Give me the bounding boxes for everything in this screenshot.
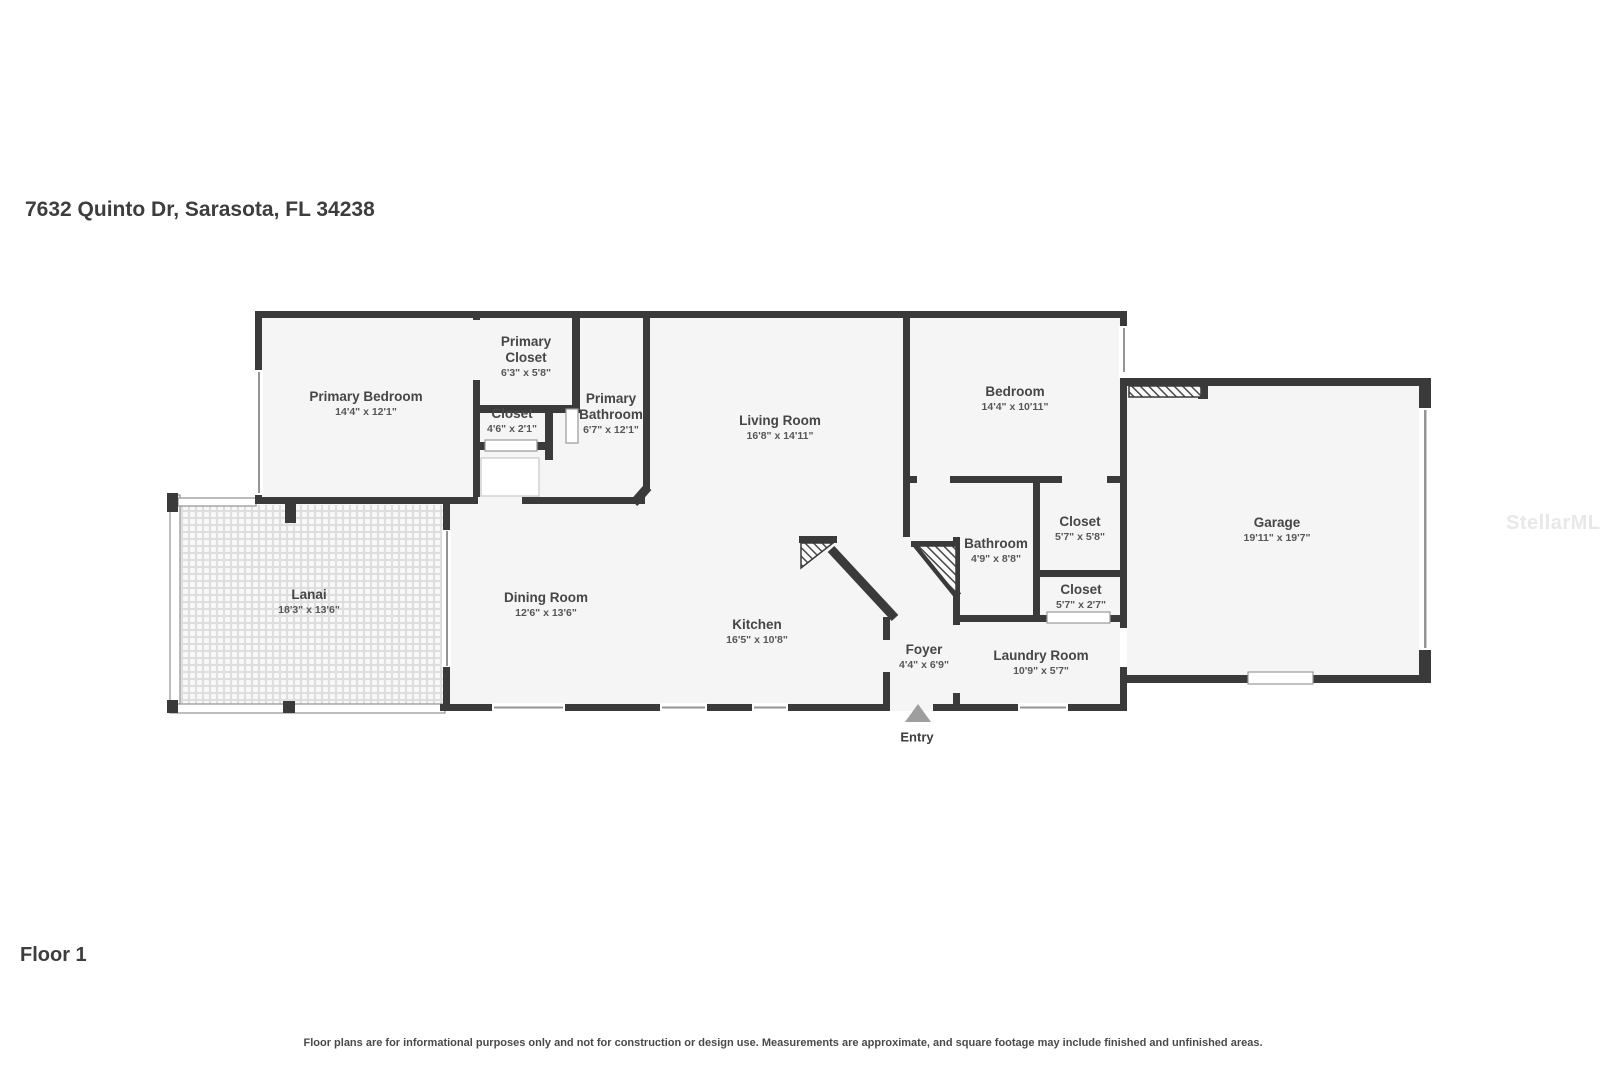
room-dims: 14'4" x 12'1" [266, 406, 466, 419]
room-dims: 16'5" x 10'8" [677, 634, 837, 647]
room-dims: 14'4" x 10'11" [935, 401, 1095, 414]
room-label-living-room: Living Room 16'8" x 14'11" [700, 413, 860, 443]
room-label-bedroom: Bedroom 14'4" x 10'11" [935, 384, 1095, 414]
room-dims: 18'3" x 13'6" [229, 604, 389, 617]
room-name: Primary Bedroom [266, 389, 466, 405]
floorplan-page: 7632 Quinto Dr, Sarasota, FL 34238 [0, 0, 1600, 1066]
room-label-closet-bedroom: Closet 5'7" x 5'8" [1035, 514, 1125, 544]
room-label-primary-bathroom: Primary Bathroom 6'7" x 12'1" [569, 391, 653, 437]
room-dims: 6'3" x 5'8" [489, 367, 563, 380]
room-name: Closet [467, 406, 557, 422]
room-name: Primary Closet [489, 334, 563, 366]
room-label-lanai: Lanai 18'3" x 13'6" [229, 587, 389, 617]
room-name: Primary Bathroom [569, 391, 653, 423]
room-label-kitchen: Kitchen 16'5" x 10'8" [677, 617, 837, 647]
room-name: Lanai [229, 587, 389, 603]
room-name: Kitchen [677, 617, 837, 633]
room-dims: 16'8" x 14'11" [700, 430, 860, 443]
entry-label: Entry [900, 730, 933, 745]
room-label-laundry-room: Laundry Room 10'9" x 5'7" [956, 648, 1126, 678]
room-name: Dining Room [466, 590, 626, 606]
room-name: Living Room [700, 413, 860, 429]
watermark: StellarMLS [1506, 512, 1600, 535]
room-name: Garage [1197, 515, 1357, 531]
room-name: Closet [1036, 582, 1126, 598]
room-label-garage: Garage 19'11" x 19'7" [1197, 515, 1357, 545]
room-dims: 5'7" x 5'8" [1035, 531, 1125, 544]
room-label-primary-bedroom: Primary Bedroom 14'4" x 12'1" [266, 389, 466, 419]
floorplan-drawing [0, 0, 1600, 1066]
room-label-dining-room: Dining Room 12'6" x 13'6" [466, 590, 626, 620]
room-dims: 19'11" x 19'7" [1197, 532, 1357, 545]
disclaimer-text: Floor plans are for informational purpos… [303, 1037, 1262, 1049]
room-name: Bedroom [935, 384, 1095, 400]
room-dims: 12'6" x 13'6" [466, 607, 626, 620]
room-label-primary-closet: Primary Closet 6'3" x 5'8" [489, 334, 563, 380]
room-name: Closet [1035, 514, 1125, 530]
room-dims: 4'9" x 8'8" [941, 553, 1051, 566]
floor-fills [179, 314, 1420, 707]
room-dims: 6'7" x 12'1" [569, 424, 653, 437]
room-label-closet-hall: Closet 4'6" x 2'1" [467, 406, 557, 436]
room-name: Laundry Room [956, 648, 1126, 664]
floor-label: Floor 1 [20, 944, 87, 967]
room-dims: 5'7" x 2'7" [1036, 599, 1126, 612]
room-dims: 4'6" x 2'1" [467, 423, 557, 436]
room-dims: 10'9" x 5'7" [956, 665, 1126, 678]
room-label-closet-laundry: Closet 5'7" x 2'7" [1036, 582, 1126, 612]
